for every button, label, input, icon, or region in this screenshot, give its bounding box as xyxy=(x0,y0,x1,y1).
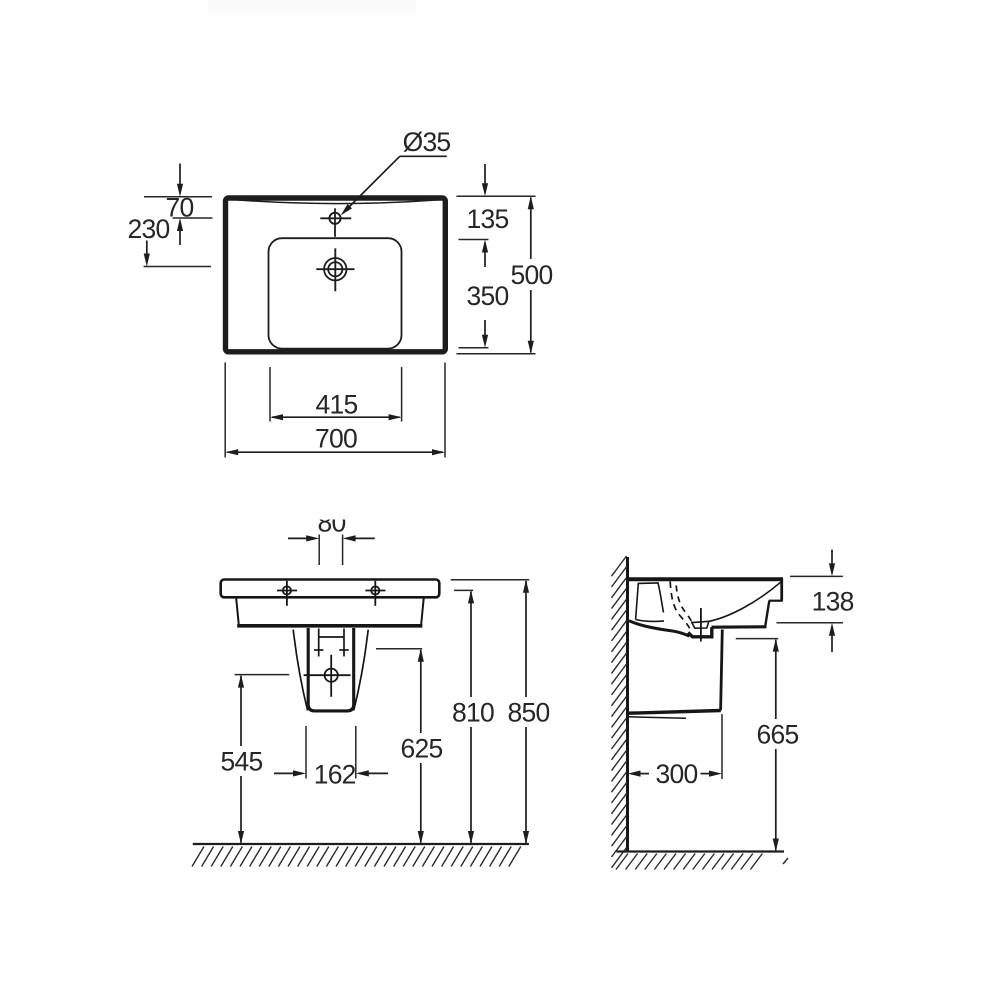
svg-text:Ø35: Ø35 xyxy=(403,127,451,157)
svg-text:665: 665 xyxy=(757,720,799,750)
svg-text:500: 500 xyxy=(511,260,553,290)
svg-text:350: 350 xyxy=(467,281,509,311)
svg-text:415: 415 xyxy=(316,390,358,420)
svg-text:135: 135 xyxy=(467,204,509,234)
svg-text:80: 80 xyxy=(318,508,346,538)
svg-text:700: 700 xyxy=(315,424,357,454)
svg-text:810: 810 xyxy=(452,698,494,728)
svg-text:230: 230 xyxy=(128,214,170,244)
svg-text:138: 138 xyxy=(812,587,854,617)
svg-text:162: 162 xyxy=(314,760,356,790)
svg-text:625: 625 xyxy=(401,734,443,764)
svg-text:300: 300 xyxy=(656,759,698,789)
svg-text:545: 545 xyxy=(221,747,263,777)
svg-text:850: 850 xyxy=(508,698,550,728)
svg-text:70: 70 xyxy=(166,193,194,223)
